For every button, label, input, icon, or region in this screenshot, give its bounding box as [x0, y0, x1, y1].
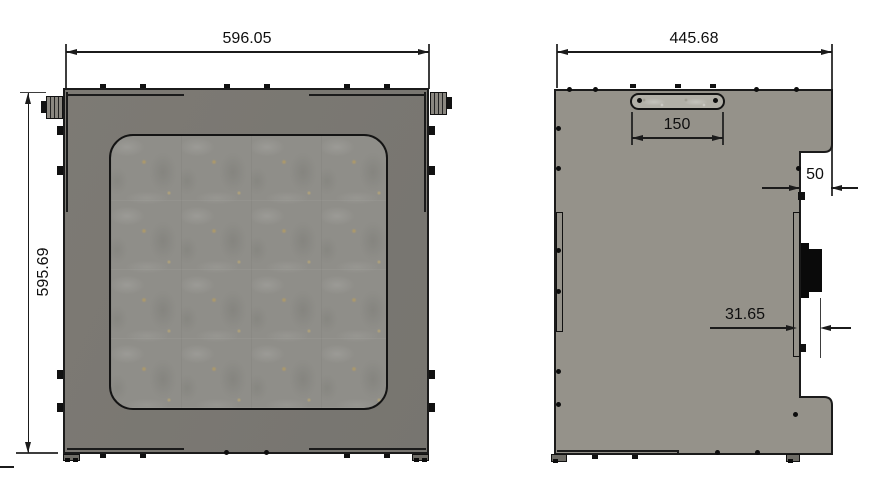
foot-tab	[788, 459, 793, 463]
edge-tab	[140, 84, 146, 88]
arrowhead	[821, 49, 832, 55]
connector-tab	[801, 292, 809, 298]
arrowhead	[557, 49, 568, 55]
edge-plate	[556, 212, 563, 332]
screw-dot	[715, 450, 720, 455]
edge-nub	[57, 403, 63, 412]
screw-dot	[556, 402, 561, 407]
arrowhead	[820, 325, 831, 331]
foot-tab	[422, 458, 427, 462]
corner-latch	[46, 96, 63, 119]
latch-nub	[447, 97, 452, 109]
screw-dot	[264, 450, 269, 455]
front-height-dimension-line	[28, 93, 30, 453]
handle-slot	[630, 93, 725, 110]
latch-nub	[41, 101, 46, 113]
front-width-dimension-line	[66, 51, 429, 53]
offset-dim-label: 31.65	[711, 307, 779, 323]
screw-dot	[713, 98, 718, 103]
screw-dot	[556, 248, 561, 253]
front-width-dim-label: 596.05	[201, 31, 293, 47]
edge-tab	[592, 455, 598, 459]
edge-nub	[57, 166, 63, 175]
arrowhead	[25, 442, 31, 453]
slot-dimension-line	[632, 137, 723, 139]
edge-plate	[793, 212, 800, 357]
edge-nub	[429, 370, 435, 379]
seam-line	[67, 94, 184, 96]
edge-tab	[675, 84, 681, 88]
foot-tab	[65, 458, 70, 462]
edge-tab	[384, 454, 390, 458]
edge-nub	[799, 344, 806, 352]
screw-dot	[793, 412, 798, 417]
arrowhead	[712, 135, 723, 141]
step-dim-label: 50	[800, 167, 830, 183]
arrowhead	[789, 185, 800, 191]
arrowhead	[25, 93, 31, 104]
seam-line	[677, 450, 679, 454]
offset-dimension-line	[710, 327, 786, 329]
foot-tab	[414, 458, 419, 462]
edge-tab	[100, 84, 106, 88]
seam-line	[67, 448, 184, 450]
drawing-canvas: 596.05 595.69 445.68 150 50 31.65	[0, 0, 889, 487]
arrowhead	[418, 49, 429, 55]
edge-tab	[140, 454, 146, 458]
seam-line	[557, 450, 678, 452]
extension-line	[16, 452, 58, 454]
front-height-dim-label: 595.69	[36, 248, 52, 297]
foot-tab	[73, 458, 78, 462]
arrowhead	[632, 135, 643, 141]
screw-dot	[593, 87, 598, 92]
sheet-edge-tick	[0, 466, 14, 468]
slot-dim-label: 150	[654, 117, 700, 133]
screw-dot	[556, 369, 561, 374]
screw-dot	[637, 98, 642, 103]
screw-dot	[556, 289, 561, 294]
screw-dot	[567, 87, 572, 92]
edge-nub	[57, 126, 63, 135]
arrowhead	[786, 325, 797, 331]
edge-nub	[429, 126, 435, 135]
edge-tab	[224, 84, 230, 88]
edge-tab	[632, 455, 638, 459]
edge-nub	[429, 403, 435, 412]
edge-nub	[798, 192, 805, 200]
edge-tab	[710, 84, 716, 88]
edge-nub	[429, 166, 435, 175]
edge-tab	[344, 84, 350, 88]
edge-tab	[344, 454, 350, 458]
corner-latch	[430, 92, 447, 115]
side-width-dimension-line	[557, 51, 832, 53]
front-window-insert	[109, 134, 388, 410]
edge-nub	[57, 370, 63, 379]
foot-tab	[553, 459, 558, 463]
edge-tab	[384, 84, 390, 88]
screw-dot	[794, 87, 799, 92]
connector-tab	[801, 243, 809, 249]
seam-line	[309, 94, 426, 96]
arrowhead	[66, 49, 77, 55]
offset-dimension-line	[831, 327, 851, 329]
seam-line	[424, 92, 426, 212]
side-width-dim-label: 445.68	[648, 31, 740, 47]
screw-dot	[224, 450, 229, 455]
screw-dot	[755, 450, 760, 455]
seam-line	[66, 92, 68, 212]
connector-block	[801, 249, 822, 292]
screw-dot	[556, 126, 561, 131]
screw-dot	[754, 87, 759, 92]
arrowhead	[831, 185, 842, 191]
edge-tab	[100, 454, 106, 458]
screw-dot	[556, 166, 561, 171]
seam-line	[309, 448, 426, 450]
edge-tab	[630, 84, 636, 88]
edge-tab	[264, 84, 270, 88]
